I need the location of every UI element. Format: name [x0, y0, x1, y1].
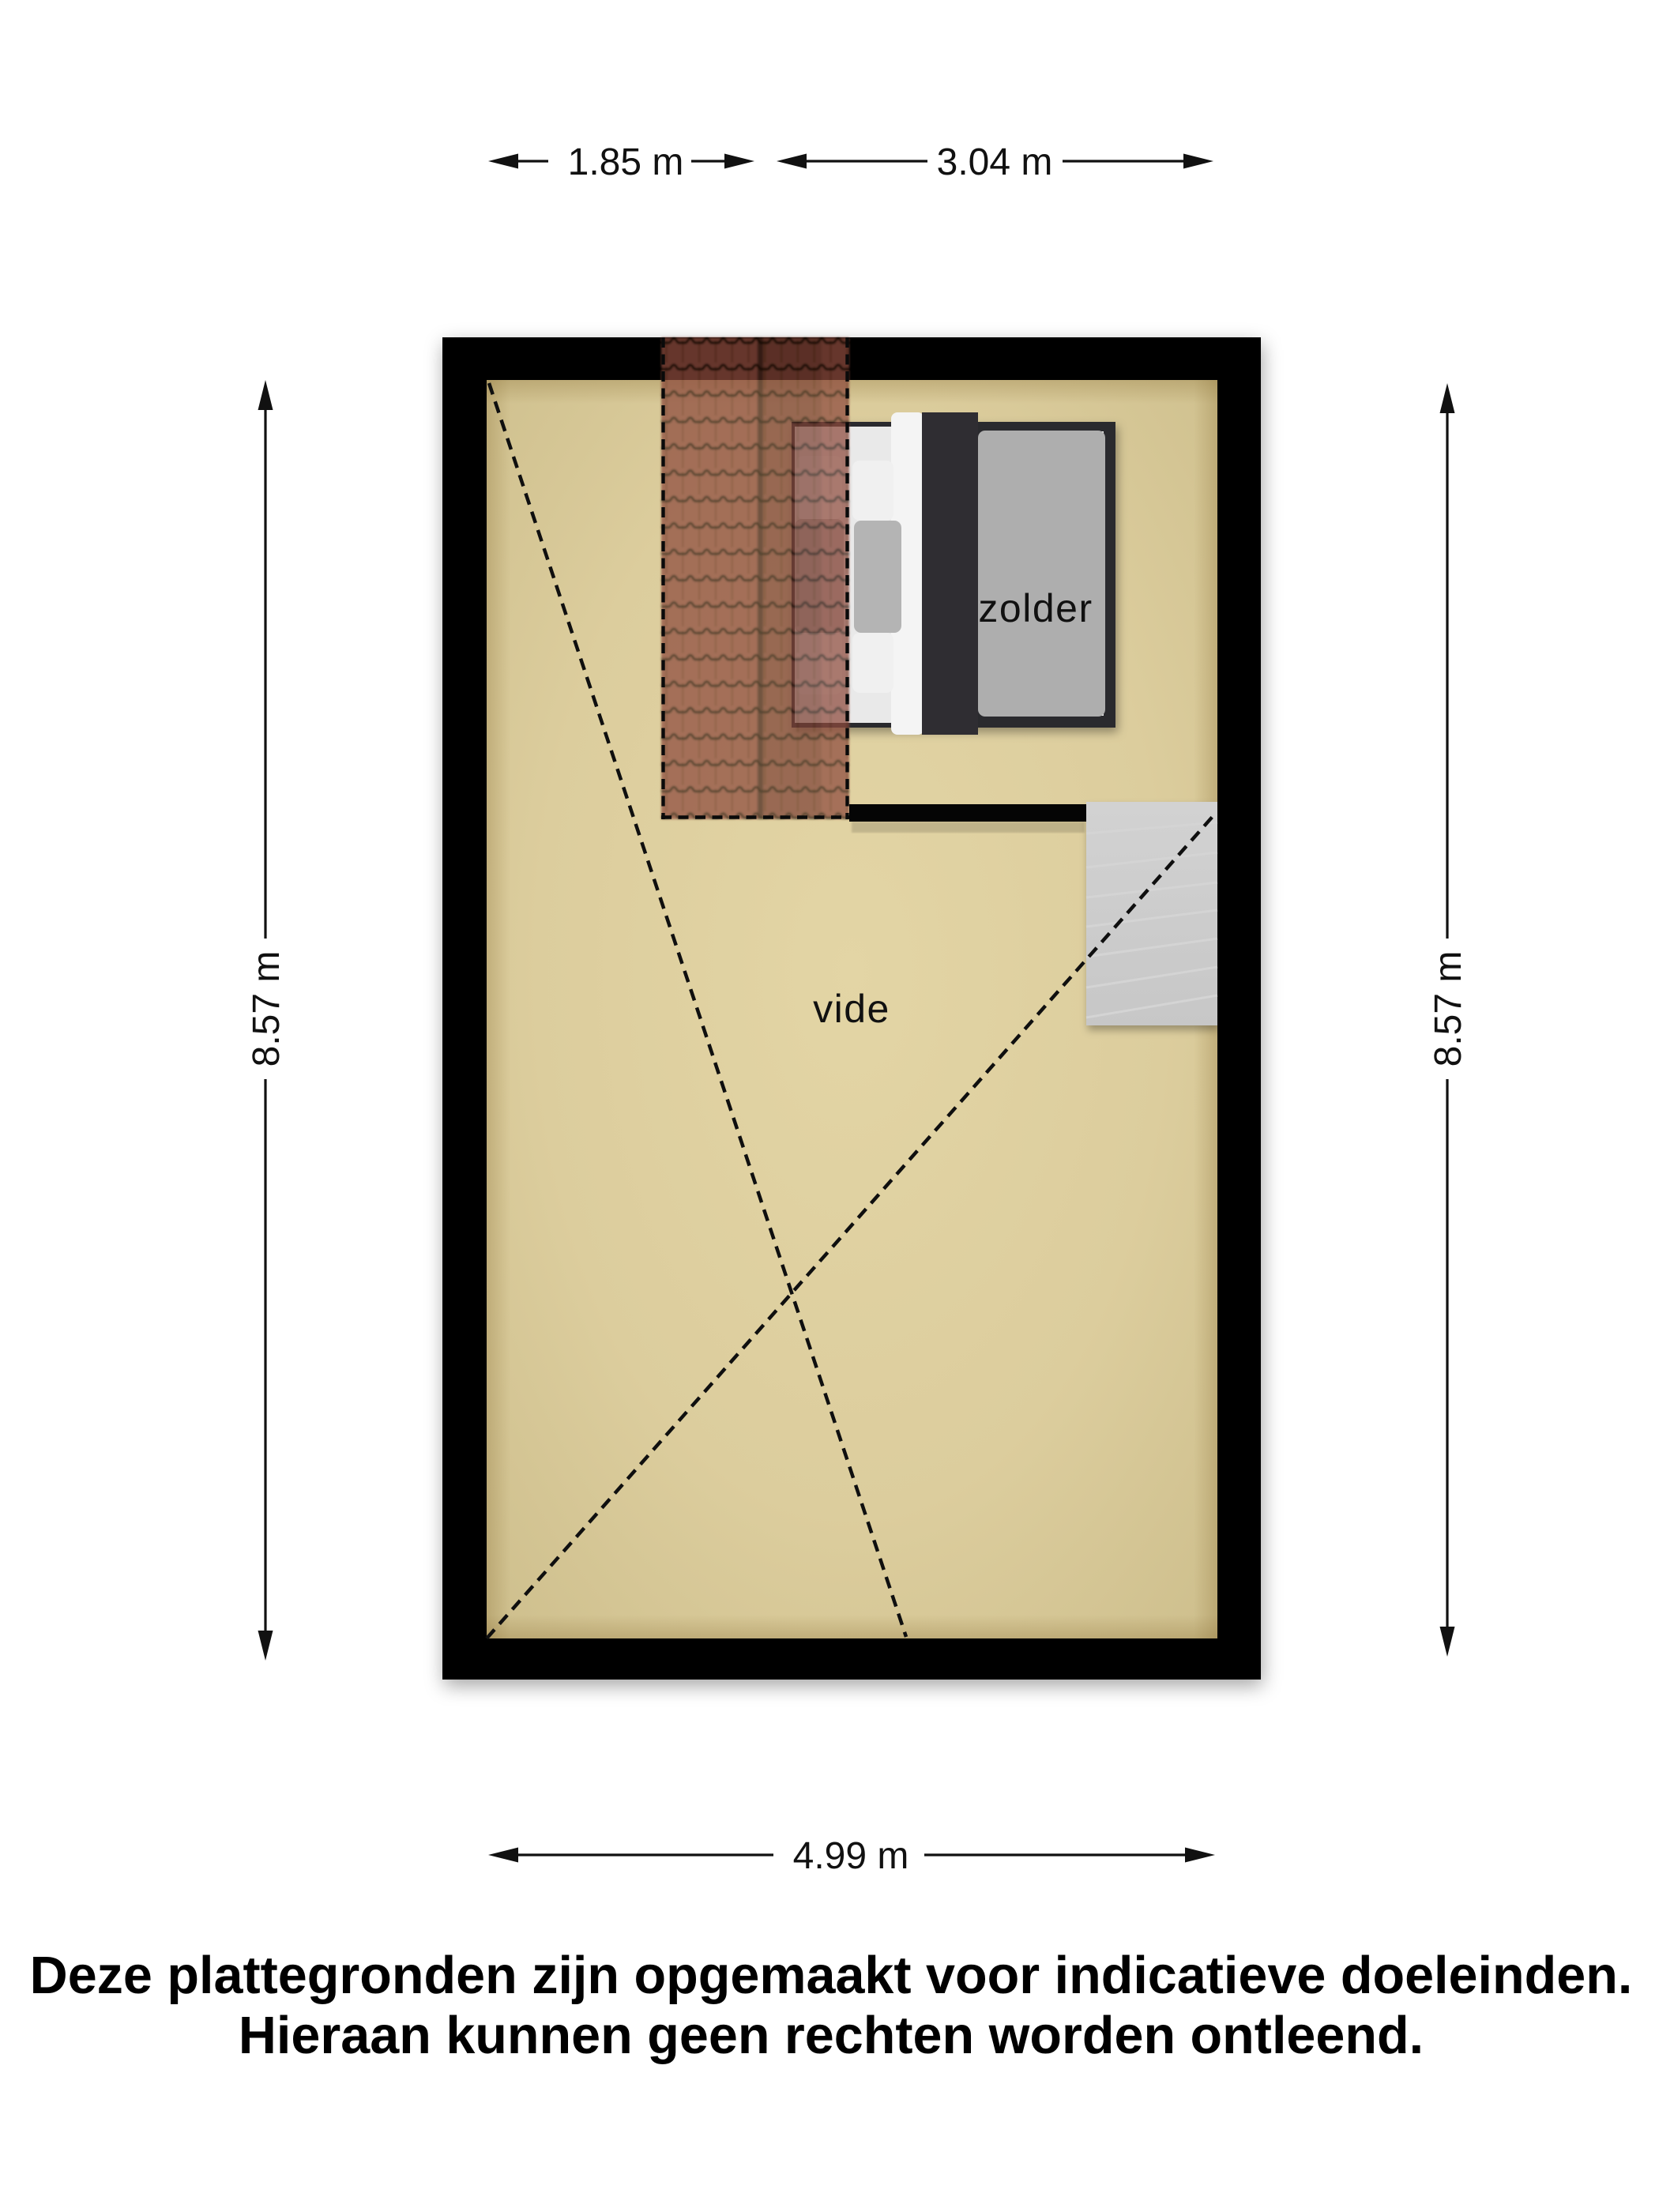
svg-text:1.85 m: 1.85 m — [568, 141, 684, 183]
svg-text:3.04 m: 3.04 m — [937, 141, 1053, 183]
svg-text:Deze plattegronden zijn opgema: Deze plattegronden zijn opgemaakt voor i… — [30, 1947, 1633, 2005]
svg-text:8.57 m: 8.57 m — [1428, 951, 1469, 1067]
svg-text:8.57 m: 8.57 m — [246, 951, 288, 1067]
svg-text:zolder: zolder — [978, 586, 1093, 630]
svg-text:Hieraan kunnen geen rechten wo: Hieraan kunnen geen rechten worden ontle… — [239, 2007, 1424, 2065]
svg-text:4.99 m: 4.99 m — [793, 1835, 909, 1877]
svg-text:vide: vide — [813, 987, 890, 1031]
